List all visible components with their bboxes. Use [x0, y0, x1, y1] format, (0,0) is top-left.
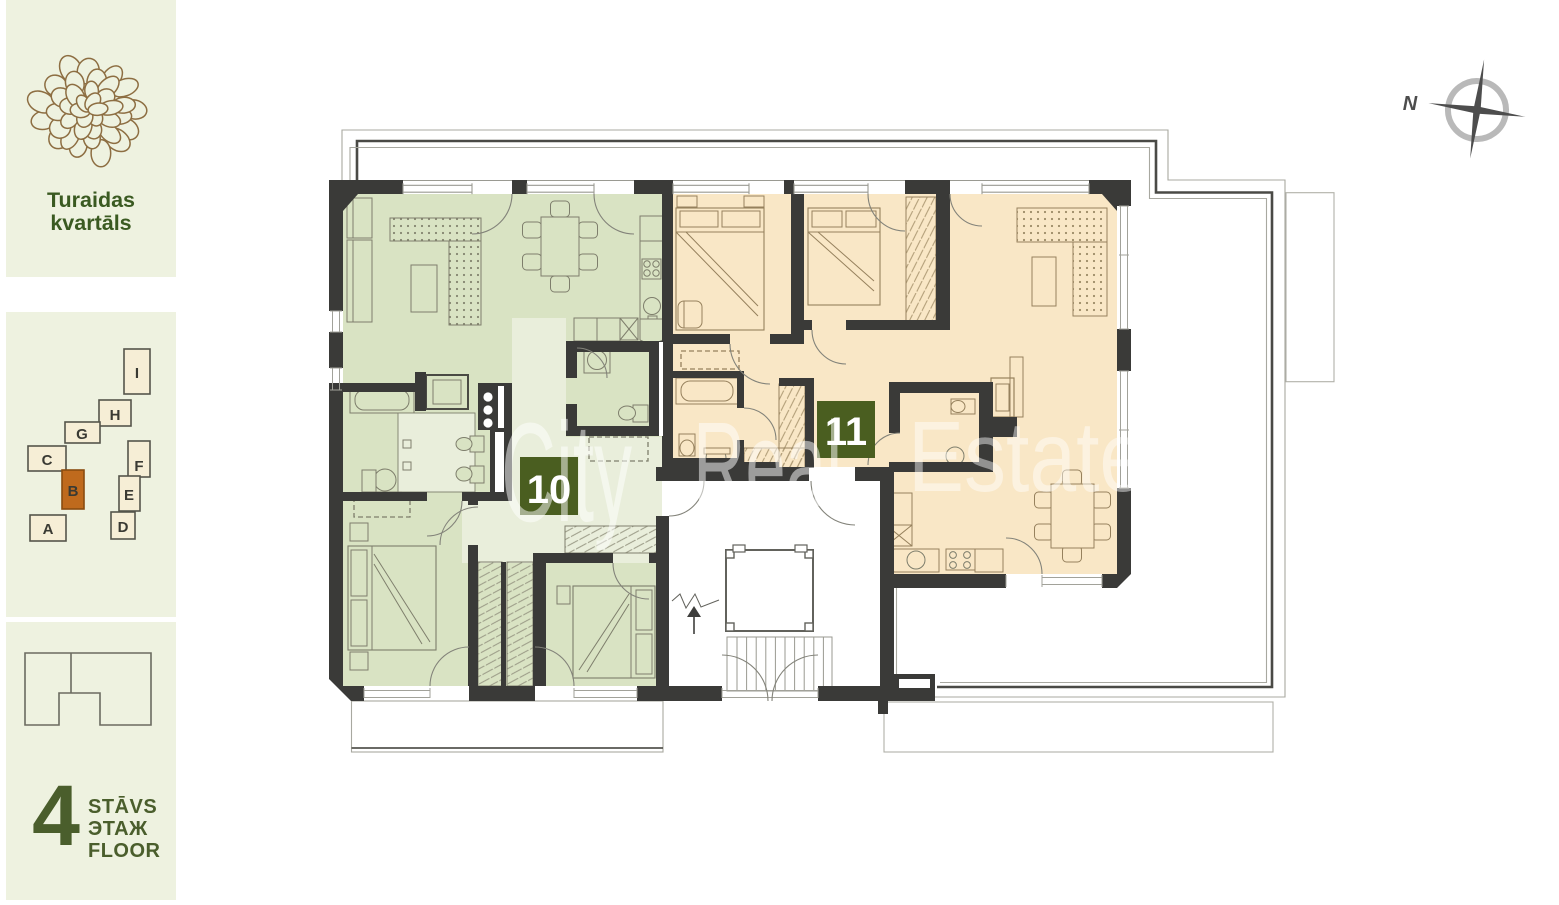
svg-text:FLOOR: FLOOR	[88, 840, 161, 862]
svg-text:Real: Real	[693, 398, 842, 533]
svg-text:I: I	[135, 365, 139, 382]
svg-text:F: F	[134, 458, 143, 475]
svg-text:ЭТАЖ: ЭТАЖ	[88, 818, 148, 840]
svg-text:Turaidas: Turaidas	[47, 188, 135, 212]
svg-text:City: City	[501, 394, 632, 552]
svg-text:4: 4	[32, 768, 80, 864]
svg-text:kvartāls: kvartāls	[50, 211, 131, 235]
svg-text:H: H	[110, 407, 121, 424]
svg-text:C: C	[42, 452, 53, 469]
svg-text:B: B	[68, 483, 79, 500]
svg-text:G: G	[76, 426, 88, 443]
svg-text:D: D	[118, 519, 129, 536]
svg-text:N: N	[1403, 93, 1418, 115]
svg-text:Estate: Estate	[908, 400, 1146, 513]
svg-text:E: E	[124, 487, 134, 504]
svg-text:A: A	[43, 521, 54, 538]
svg-text:STĀVS: STĀVS	[88, 796, 157, 818]
